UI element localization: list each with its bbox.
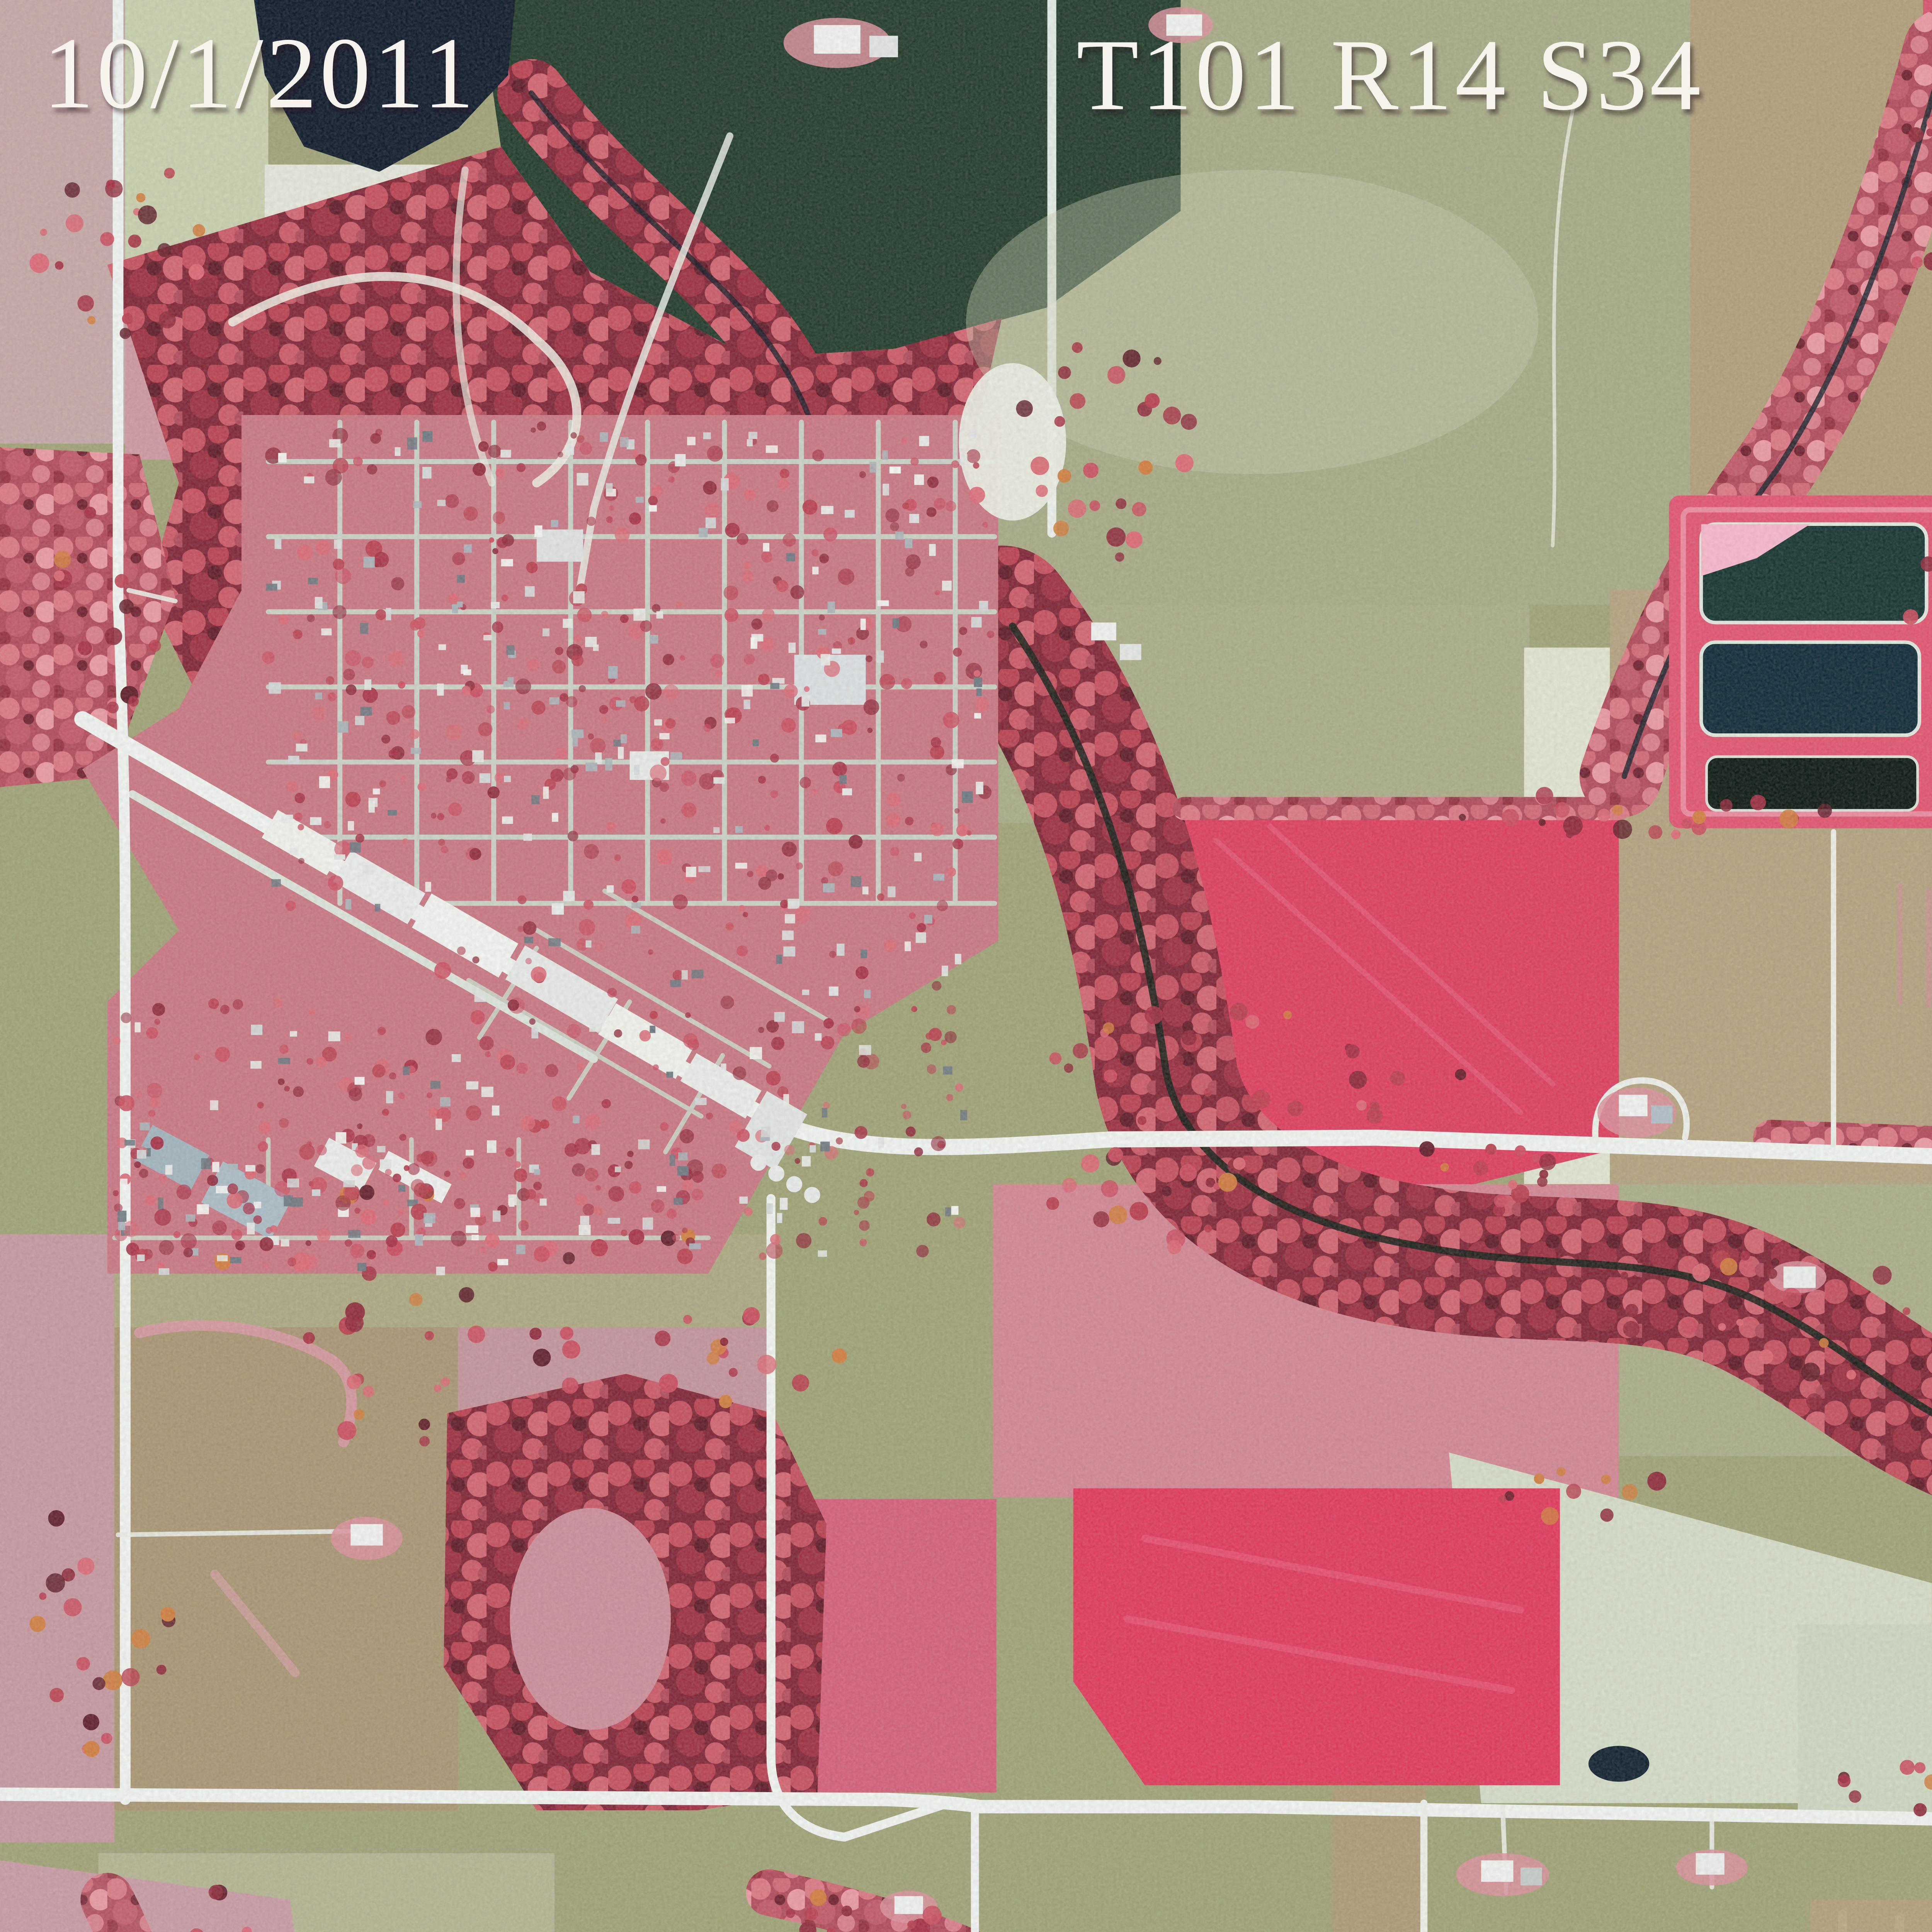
aerial-photo-viewer: 10/1/2011 T101 R14 S34 FIL-21-116 — [0, 0, 1932, 1932]
photo-grain-dark — [0, 0, 1932, 1932]
township-range-section-label: T101 R14 S34 — [1077, 18, 1704, 131]
aerial-photo: 10/1/2011 T101 R14 S34 FIL-21-116 — [0, 0, 1932, 1932]
photo-date-label: 10/1/2011 — [43, 17, 477, 129]
